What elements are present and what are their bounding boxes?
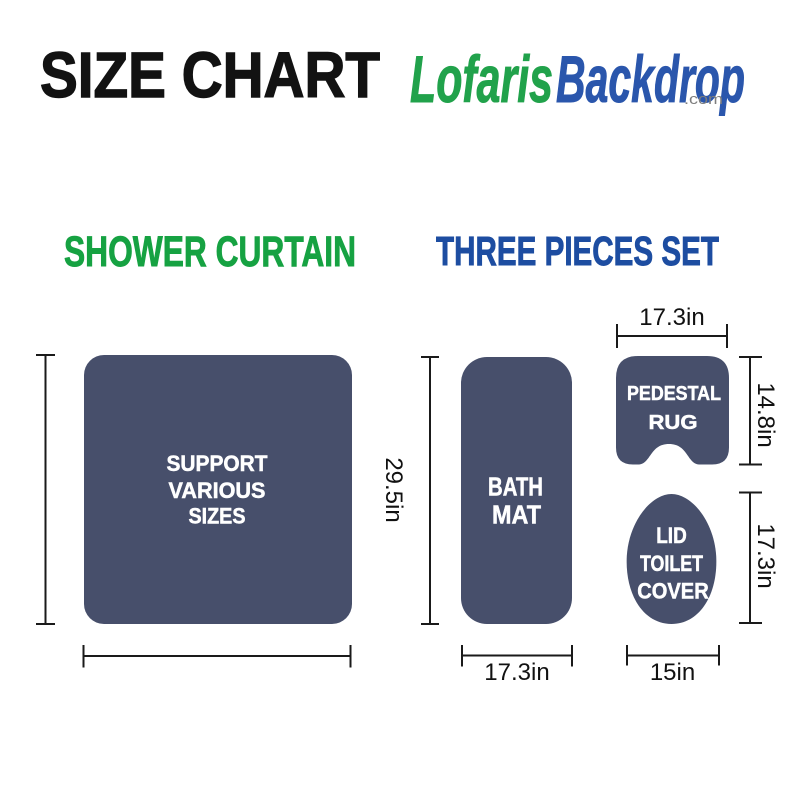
svg-text:15in: 15in (650, 659, 695, 686)
svg-text:17.3in: 17.3in (752, 523, 779, 588)
svg-text:29.5in: 29.5in (380, 457, 407, 522)
svg-text:TOILET: TOILET (640, 551, 703, 576)
svg-text:SIZE CHART: SIZE CHART (40, 39, 380, 111)
svg-text:.com: .com (684, 91, 723, 108)
svg-text:SUPPORT: SUPPORT (167, 451, 269, 476)
svg-text:17.3in: 17.3in (639, 304, 704, 331)
svg-text:17.3in: 17.3in (484, 659, 549, 686)
svg-text:PEDESTAL: PEDESTAL (627, 383, 721, 405)
svg-text:RUG: RUG (649, 412, 698, 434)
svg-text:COVER: COVER (637, 579, 709, 604)
svg-text:THREE PIECES SET: THREE PIECES SET (436, 228, 719, 274)
svg-text:SIZES: SIZES (189, 504, 246, 529)
svg-text:SHOWER CURTAIN: SHOWER CURTAIN (64, 228, 356, 276)
svg-text:Lofaris: Lofaris (410, 42, 553, 116)
svg-text:14.8in: 14.8in (752, 382, 779, 447)
svg-text:MAT: MAT (492, 500, 541, 530)
svg-text:LID: LID (656, 523, 687, 548)
svg-text:VARIOUS: VARIOUS (169, 478, 266, 503)
svg-text:BATH: BATH (488, 472, 543, 502)
